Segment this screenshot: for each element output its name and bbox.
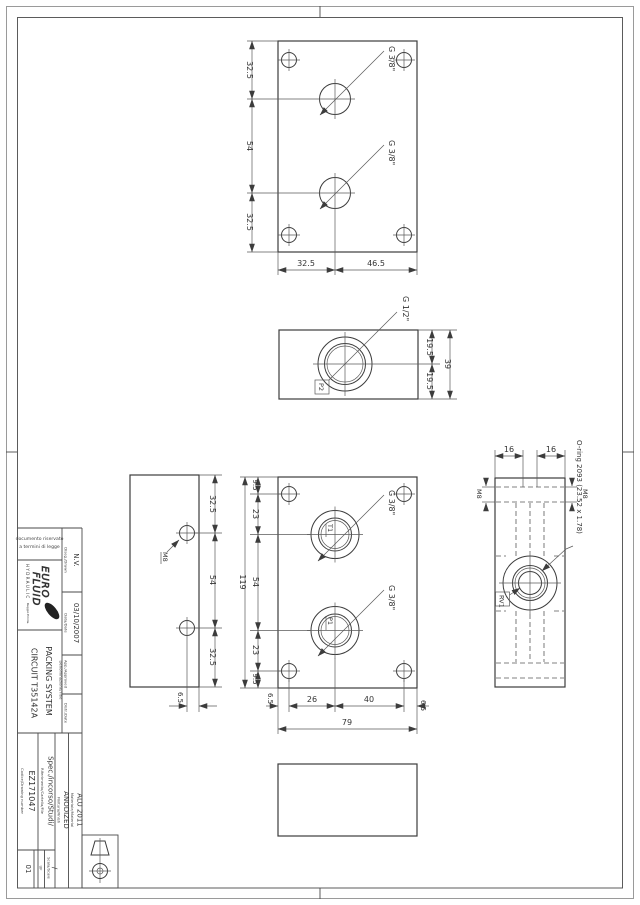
dim-label: 19.5 — [425, 372, 434, 390]
projection-symbol — [82, 835, 118, 888]
drawn-label: Diseg./Drawn — [64, 547, 69, 573]
legal-note-line2: a termini di legge — [19, 544, 60, 550]
drawing-sheet: G 3/8" G 3/8" 32.5 54 32.5 32.5 46.5 P — [0, 0, 640, 905]
m8-left-label: M8 — [475, 489, 483, 499]
company-logo: EURO FLUID HYDRAULIC Reggio Emilia — [25, 564, 62, 624]
t1-tag: T1 — [326, 523, 334, 532]
dim-label: 39 — [443, 359, 452, 369]
dim-label: 32.5 — [297, 259, 315, 268]
title-block: documento riservato a termini di legge E… — [16, 528, 118, 888]
material-value: ALU 2011 — [76, 793, 84, 827]
denomination-label: Denominazione/Title — [59, 660, 64, 700]
logo-tagline: Reggio Emilia — [26, 603, 30, 624]
dim-label: 6.5 — [176, 692, 184, 703]
view-side-p2: P2 G 1/2" 19.5 19.5 39 — [279, 296, 457, 399]
dim-label: 16 — [504, 445, 514, 454]
logo-swoosh-icon — [42, 600, 62, 621]
rv1-tag: RV1 — [498, 595, 506, 608]
dim-label: 46.5 — [367, 259, 385, 268]
finish-label: Finitura/Finish — [57, 797, 62, 824]
cartridge-port — [499, 552, 561, 614]
code-label: Codice/Drawing number — [20, 768, 25, 814]
view-side-m8: M8 32.5 54 32.5 6.5 — [130, 475, 222, 712]
dim-label: 79 — [342, 718, 352, 727]
port-circles — [307, 507, 363, 659]
dim-left — [240, 477, 311, 688]
view-bottom-plate — [278, 764, 417, 836]
reference-label: Riferimento/Cartella/File — [40, 768, 45, 815]
dim-label: 23 — [251, 509, 260, 519]
port1-label: G 3/8" — [387, 46, 396, 71]
m8-right-label: M8 — [581, 489, 589, 499]
dim-label: 26 — [307, 695, 317, 704]
dim-label: 54 — [251, 577, 260, 587]
legal-note-line1: documento riservato — [16, 536, 64, 542]
date-label: Data/Date — [64, 613, 69, 633]
view-side-rv1: RV1 O-ring 2093 (23.52 x 1.78) 16 16 M8 … — [475, 440, 589, 687]
sheet-value: 01 — [24, 865, 32, 874]
drawn-value: N.V. — [72, 553, 80, 567]
port2-label: G 3/8" — [387, 140, 396, 165]
denomination-line1: PACKING SYSTEM — [44, 646, 53, 716]
dim-label: 9.5 — [251, 479, 259, 490]
logo-subtitle: HYDRAULIC — [25, 564, 30, 600]
dim-label: 40 — [364, 695, 374, 704]
distr-label: Distr./Date — [64, 703, 69, 724]
p1-tag: P1 — [326, 617, 334, 625]
port1-label: G 3/8" — [387, 490, 396, 515]
port-circles — [315, 79, 355, 213]
view-top-plate: G 3/8" G 3/8" 32.5 54 32.5 32.5 46.5 — [245, 41, 417, 275]
dim-label: 119 — [238, 574, 247, 589]
dim-label: 54 — [208, 575, 217, 585]
view-front-plate: T1 P1 G 3/8" G 3/8" 9.5 23 54 23 9.5 119 — [238, 477, 429, 734]
denomination-line2: CIRCUIT T35142A — [30, 648, 39, 719]
dim-label: 6.5 — [419, 700, 427, 711]
dim-label: 19.5 — [425, 338, 434, 356]
dim-left — [247, 41, 315, 252]
p2-tag: P2 — [317, 383, 325, 391]
dim-label: 16 — [546, 445, 556, 454]
logo-name-bottom: FLUID — [30, 572, 41, 606]
date-value: 03/10/2007 — [72, 603, 80, 643]
m8-label: M8 — [161, 552, 169, 562]
dim-label: 6.5 — [266, 693, 274, 704]
code-value: EZ171047 — [27, 770, 36, 811]
sheet-label: UF — [39, 866, 44, 871]
dim-label: 32.5 — [208, 648, 217, 666]
technical-drawing: G 3/8" G 3/8" 32.5 54 32.5 32.5 46.5 P — [0, 0, 640, 905]
dim-label: 23 — [251, 645, 260, 655]
p2-port-label: G 1/2" — [401, 296, 410, 321]
reference-value: Spec./incorso/Studi/ — [47, 756, 55, 826]
dim-label: 54 — [245, 141, 254, 151]
dim-label: 9.5 — [251, 673, 259, 684]
dim-top — [495, 450, 565, 487]
m8-callouts — [482, 478, 577, 511]
port2-label: G 3/8" — [387, 585, 396, 610]
dim-label: 32.5 — [245, 213, 254, 231]
finish-value: ANODIZED — [62, 791, 70, 829]
dim-label: 32.5 — [245, 61, 254, 79]
page-border — [6, 6, 634, 899]
dim-label: 32.5 — [208, 495, 217, 513]
